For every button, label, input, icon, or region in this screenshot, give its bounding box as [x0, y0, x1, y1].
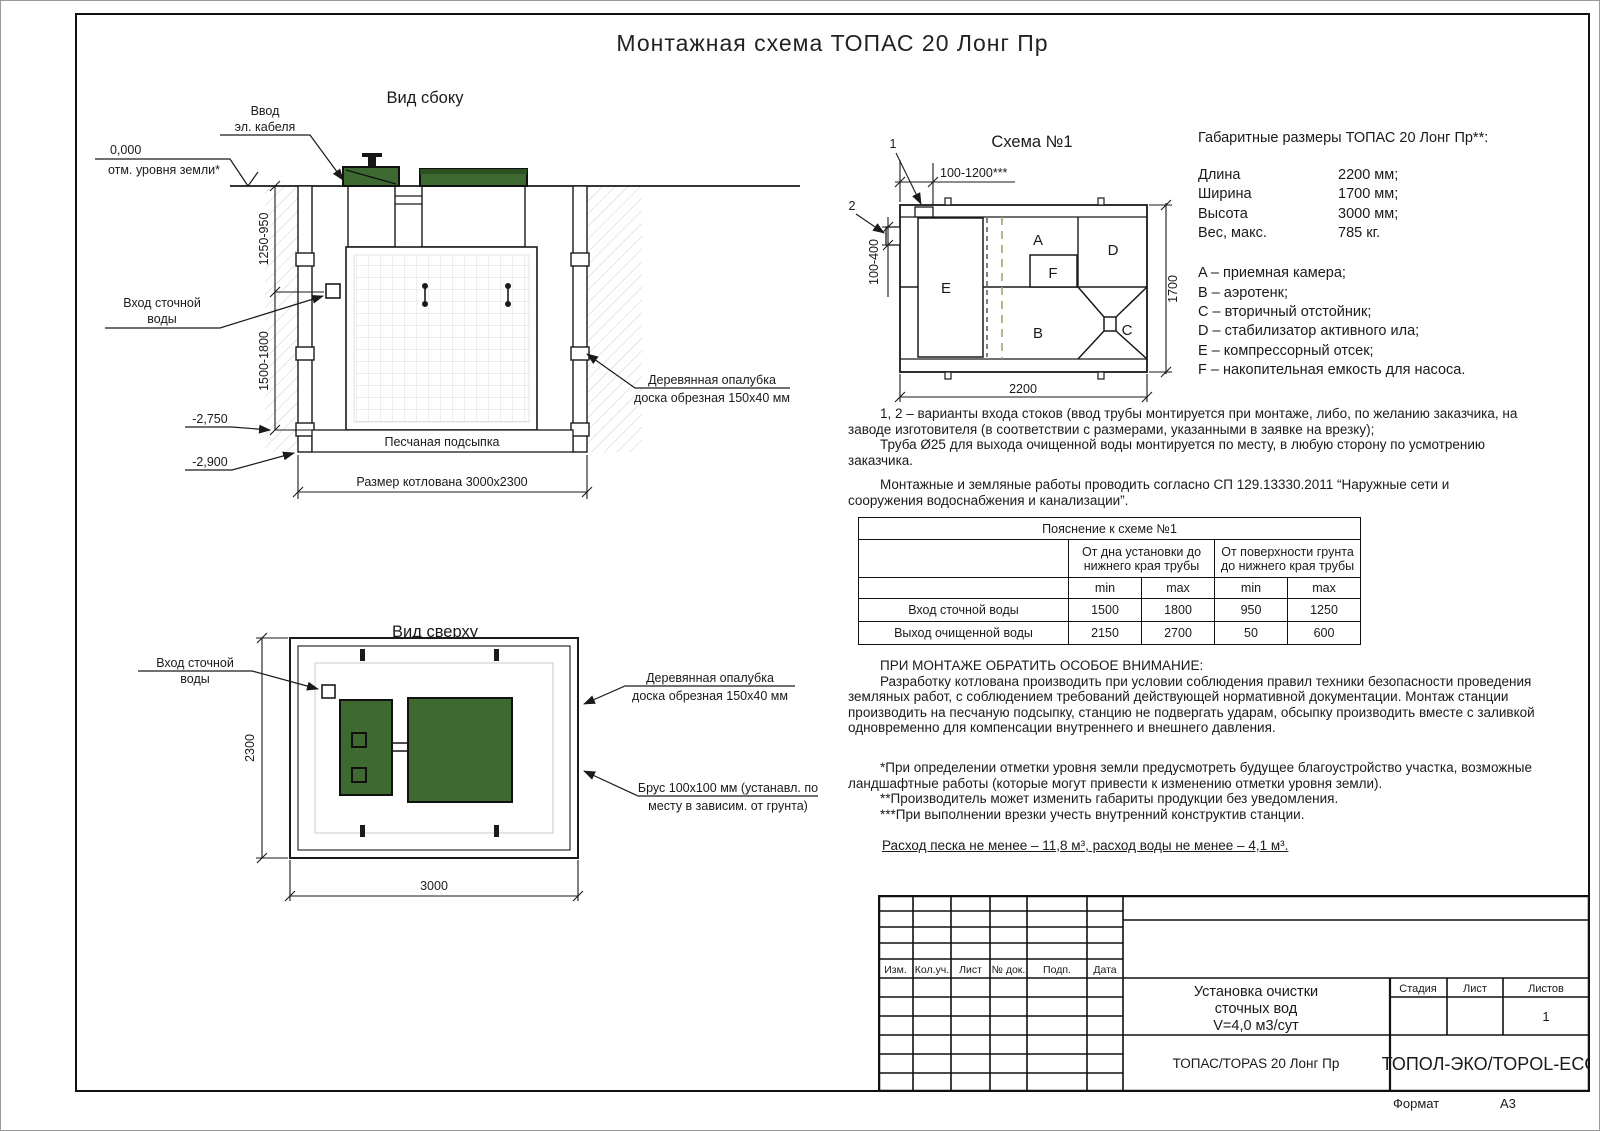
zero-level-mark: 0,000 отм. уровня земли* — [95, 143, 258, 186]
chamber-c-label: C — [1122, 322, 1133, 339]
consumption-note: Расход песка не менее – 11,8 м³, расход … — [882, 838, 1442, 854]
dim-left-label: 100-400 — [867, 239, 881, 285]
svg-text:Установка очистки: Установка очистки — [1194, 984, 1318, 1000]
overall-title: Габаритные размеры ТОПАС 20 Лонг Пр**: — [1198, 130, 1558, 146]
title-block-headers: Изм. Кол.уч. Лист № док. Подп. Дата — [884, 964, 1117, 976]
table-group-2: От поверхности грунта до нижнего края тр… — [1215, 540, 1361, 578]
svg-text:Деревянная опалубка: Деревянная опалубка — [648, 373, 776, 387]
legend-item: B – аэротенк; — [1198, 285, 1558, 304]
top-view-drawing: Вид сверху Вход сточной воды 2300 3000 Д… — [90, 585, 850, 925]
dim-right-label: 1700 — [1166, 275, 1180, 303]
svg-text:месту в зависим. от грунта): месту в зависим. от грунта) — [648, 799, 808, 813]
chamber-c-funnel — [1078, 287, 1147, 359]
side-view-title: Вид сбоку — [387, 89, 465, 107]
svg-text:Ввод: Ввод — [251, 104, 281, 118]
chamber-f-label: F — [1048, 265, 1057, 282]
inlet-variant-1 — [915, 207, 933, 217]
svg-text:доска обрезная 150х40 мм: доска обрезная 150х40 мм — [634, 391, 790, 405]
dim-row: Вес, макс.785 кг. — [1198, 225, 1558, 244]
page-title: Монтажная схема ТОПАС 20 Лонг Пр — [75, 30, 1590, 57]
svg-text:Размер котлована 3000х2300: Размер котлована 3000х2300 — [356, 475, 527, 489]
svg-text:Деревянная опалубка: Деревянная опалубка — [646, 671, 774, 685]
inlet-plan — [322, 685, 335, 698]
svg-text:Лист: Лист — [959, 964, 982, 976]
legend-item: C – вторичный отстойник; — [1198, 304, 1558, 323]
svg-text:Листов: Листов — [1528, 983, 1564, 995]
overall-dimensions: Габаритные размеры ТОПАС 20 Лонг Пр**: Д… — [1198, 130, 1558, 382]
table-row: Выход очищенной воды 2150 2700 50 600 — [859, 622, 1361, 645]
dim-1250-950: 1250-950 — [257, 213, 271, 266]
mark-1: 1 — [890, 137, 897, 151]
svg-text:Изм.: Изм. — [884, 964, 907, 976]
dim-2300: 2300 — [243, 734, 257, 762]
chamber-d-label: D — [1108, 242, 1119, 259]
side-view-drawing: Вид сбоку — [80, 85, 840, 515]
dim-bottom-label: 2200 — [1009, 382, 1037, 396]
svg-text:Подп.: Подп. — [1043, 964, 1071, 976]
legend-item: F – накопительная емкость для насоса. — [1198, 362, 1558, 381]
chamber-a-label: A — [1033, 232, 1043, 249]
notes-works: Монтажные и земляные работы проводить со… — [848, 477, 1508, 508]
zero-value: 0,000 — [110, 143, 141, 157]
svg-text:Брус 100х100 мм (устанавл. по: Брус 100х100 мм (устанавл. по — [638, 781, 818, 795]
format-label: Формат — [1393, 1096, 1439, 1111]
attention-title: ПРИ МОНТАЖЕ ОБРАТИТЬ ОСОБОЕ ВНИМАНИЕ: — [848, 658, 1542, 674]
table-group-1: От дна установки до нижнего края трубы — [1069, 540, 1215, 578]
legend-item: D – стабилизатор активного ила; — [1198, 323, 1558, 342]
dim-row: Высота3000 мм; — [1198, 206, 1558, 225]
tank-lids — [343, 153, 527, 186]
table-title: Пояснение к схеме №1 — [859, 518, 1361, 540]
svg-text:V=4,0 м3/сут: V=4,0 м3/сут — [1213, 1018, 1299, 1034]
schema-explanation-table: Пояснение к схеме №1 От дна установки до… — [858, 517, 1361, 645]
beam-callout: Брус 100х100 мм (устанавл. по месту в за… — [584, 771, 818, 813]
table-row: Вход сточной воды 1500 1800 950 1250 — [859, 599, 1361, 622]
svg-text:воды: воды — [147, 312, 176, 326]
svg-text:воды: воды — [180, 672, 209, 686]
sheets-count: 1 — [1542, 1009, 1549, 1024]
chamber-b-label: B — [1033, 325, 1043, 342]
dim-row: Длина2200 мм; — [1198, 167, 1558, 186]
notes-variants: 1, 2 – варианты входа стоков (ввод трубы… — [848, 406, 1548, 468]
svg-text:доска обрезная 150х40 мм: доска обрезная 150х40 мм — [632, 689, 788, 703]
tank-side — [326, 153, 537, 430]
svg-text:Вход сточной: Вход сточной — [123, 296, 201, 310]
dim-top-label: 100-1200*** — [940, 166, 1008, 180]
chamber-legend: A – приемная камера; B – аэротенк; C – в… — [1198, 265, 1558, 381]
inlet-stub — [326, 284, 340, 298]
cable-entry: Ввод эл. кабеля — [220, 104, 343, 180]
svg-text:Кол.уч.: Кол.уч. — [915, 964, 949, 976]
chamber-e-label: E — [941, 280, 951, 297]
schema-title: Схема №1 — [991, 133, 1072, 151]
level-2750: -2,750 — [192, 412, 227, 426]
footnotes: *При определении отметки уровня земли пр… — [848, 760, 1548, 822]
doc-name: Установка очистки сточных вод V=4,0 м3/с… — [1194, 984, 1318, 1034]
mark-2: 2 — [849, 199, 856, 213]
ground-level-label: отм. уровня земли* — [108, 163, 220, 177]
sand-label: Песчаная подсыпка — [384, 435, 499, 449]
pit-size-dim: Размер котлована 3000х2300 — [293, 455, 592, 499]
format-value: А3 — [1500, 1096, 1516, 1111]
svg-text:сточных вод: сточных вод — [1215, 1001, 1298, 1017]
product-name: ТОПАС/TOPAS 20 Лонг Пр — [1173, 1056, 1340, 1071]
overall-rows: Длина2200 мм; Ширина1700 мм; Высота3000 … — [1198, 167, 1558, 244]
company-name: ТОПОЛ-ЭКО/TOPOL-ECO — [1382, 1054, 1590, 1074]
legend-item: A – приемная камера; — [1198, 265, 1558, 284]
svg-text:Стадия: Стадия — [1399, 983, 1437, 995]
dim-row: Ширина1700 мм; — [1198, 186, 1558, 205]
dim-1500-1800: 1500-1800 — [257, 331, 271, 391]
svg-text:Лист: Лист — [1463, 983, 1487, 995]
level-2900: -2,900 — [192, 455, 227, 469]
dim-3000: 3000 — [420, 879, 448, 893]
svg-text:№ док.: № док. — [992, 964, 1026, 976]
schema-1-drawing: Схема №1 A B C D E F 1 2 — [810, 115, 1210, 415]
title-block: Изм. Кол.уч. Лист № док. Подп. Дата Уста… — [878, 895, 1590, 1092]
svg-text:Дата: Дата — [1093, 964, 1116, 976]
svg-text:Вход сточной: Вход сточной — [156, 656, 234, 670]
sheet-headers: Стадия Лист Листов — [1399, 983, 1564, 995]
tank-covers-plan — [340, 698, 512, 802]
attention-block: ПРИ МОНТАЖЕ ОБРАТИТЬ ОСОБОЕ ВНИМАНИЕ: Ра… — [848, 658, 1542, 736]
legend-item: E – компрессорный отсек; — [1198, 343, 1558, 362]
formwork-callout-plan: Деревянная опалубка доска обрезная 150х4… — [584, 671, 795, 704]
svg-text:эл. кабеля: эл. кабеля — [235, 120, 296, 134]
